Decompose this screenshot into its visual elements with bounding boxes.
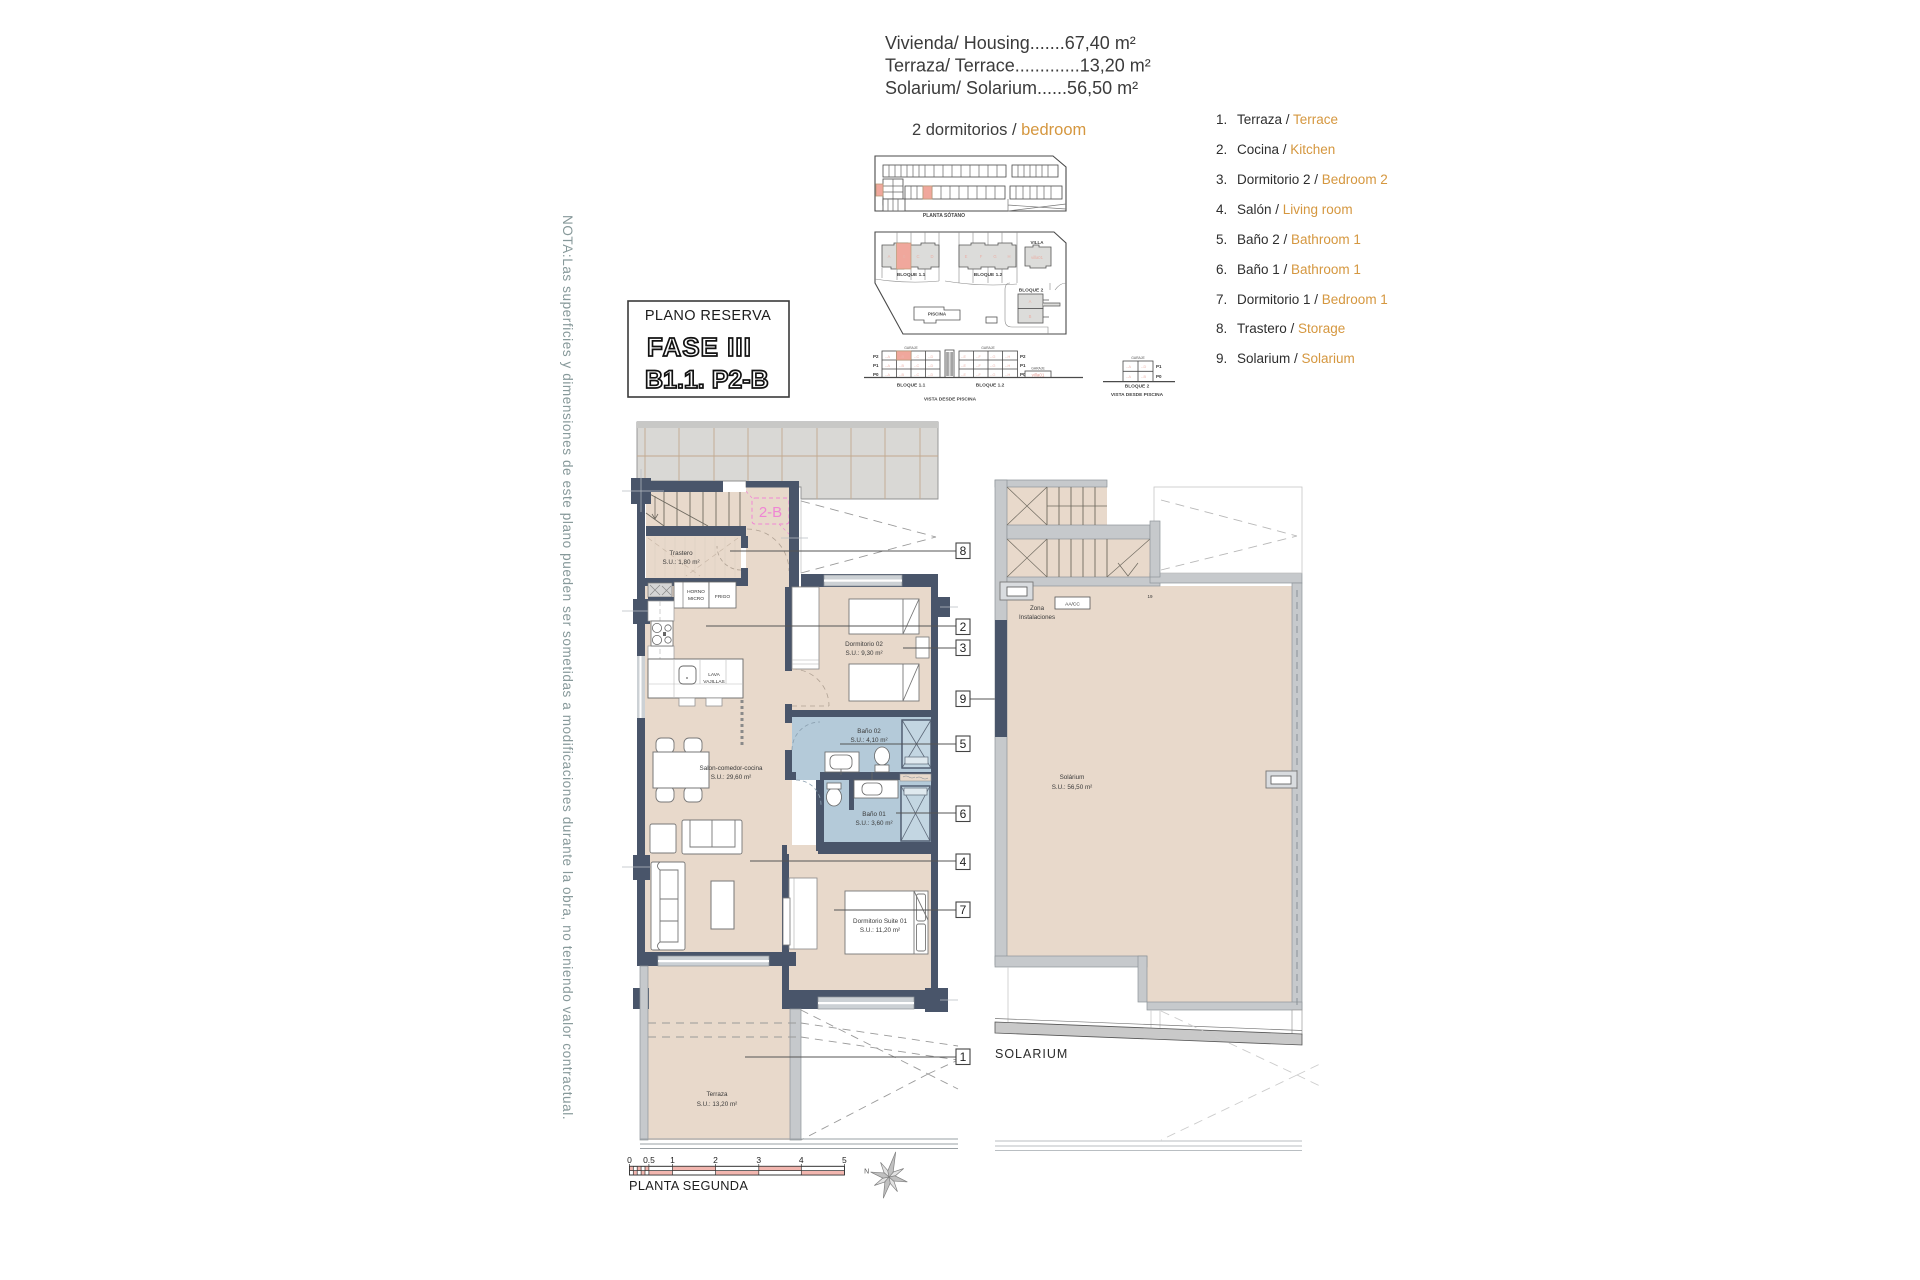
svg-text:4: 4	[799, 1155, 804, 1165]
svg-text:GARAJE: GARAJE	[904, 346, 918, 350]
svg-text:--B: --B	[899, 355, 905, 359]
svg-text:--B: --B	[899, 373, 905, 377]
svg-text:G: G	[993, 254, 996, 259]
svg-text:--F: --F	[976, 364, 982, 368]
svg-text:--A: --A	[885, 355, 891, 359]
svg-text:--C: --C	[914, 373, 920, 377]
svg-text:villa01: villa01	[1032, 373, 1045, 378]
svg-text:Terraza / Terrace: Terraza / Terrace	[1237, 112, 1338, 127]
svg-text:--D: --D	[928, 373, 934, 377]
svg-text:H: H	[1007, 254, 1010, 259]
svg-text:Vivienda/ Housing.......67,40: Vivienda/ Housing.......67,40 m²	[885, 33, 1136, 53]
svg-text:Dormitorio Suite 01: Dormitorio Suite 01	[853, 918, 907, 925]
svg-text:4.: 4.	[1216, 202, 1227, 217]
svg-text:Dormitorio 02: Dormitorio 02	[845, 641, 883, 648]
svg-text:S.U.: 11,20 m²: S.U.: 11,20 m²	[860, 927, 900, 934]
svg-text:--A: --A	[1126, 375, 1132, 379]
svg-text:1: 1	[960, 1050, 967, 1064]
svg-text:1: 1	[670, 1155, 675, 1165]
svg-text:--D: --D	[1141, 365, 1147, 369]
svg-text:2.: 2.	[1216, 142, 1227, 157]
svg-text:5.: 5.	[1216, 232, 1227, 247]
svg-text:GARAJE: GARAJE	[981, 346, 995, 350]
svg-text:BLOQUE 2: BLOQUE 2	[1125, 384, 1150, 390]
svg-text:MICRO: MICRO	[688, 596, 704, 602]
svg-text:--E: --E	[961, 373, 967, 377]
svg-text:Solarium / Solarium: Solarium / Solarium	[1237, 351, 1355, 366]
svg-text:BLOQUE 2: BLOQUE 2	[1019, 288, 1044, 294]
svg-text:0: 0	[627, 1155, 632, 1165]
svg-text:PLANO RESERVA: PLANO RESERVA	[645, 308, 771, 324]
svg-text:A: A	[1029, 299, 1032, 304]
svg-text:P1: P1	[1020, 363, 1026, 368]
svg-text:--A: --A	[1126, 365, 1132, 369]
svg-text:FASE III: FASE III	[647, 332, 752, 362]
svg-text:7.: 7.	[1216, 292, 1227, 307]
svg-text:--C: --C	[914, 355, 920, 359]
svg-text:1.: 1.	[1216, 112, 1227, 127]
svg-text:B1.1. P2-B: B1.1. P2-B	[645, 366, 769, 394]
svg-text:Dormitorio 1 / Bedroom 1: Dormitorio 1 / Bedroom 1	[1237, 292, 1388, 307]
svg-text:--G: --G	[990, 364, 996, 368]
svg-text:--H: --H	[1005, 355, 1011, 359]
svg-text:4: 4	[960, 855, 967, 869]
svg-text:PLANTA SÓTANO: PLANTA SÓTANO	[923, 211, 965, 219]
svg-text:VAJILLAS: VAJILLAS	[703, 679, 725, 685]
svg-text:VISTA DESDE PISCINA: VISTA DESDE PISCINA	[1111, 392, 1164, 398]
svg-text:P1: P1	[1156, 364, 1162, 369]
svg-text:Cocina / Kitchen: Cocina / Kitchen	[1237, 142, 1335, 157]
svg-text:P0: P0	[873, 372, 879, 377]
svg-text:--A: --A	[885, 373, 891, 377]
svg-text:E: E	[965, 254, 968, 259]
svg-text:2: 2	[960, 620, 967, 634]
svg-text:--G: --G	[990, 373, 996, 377]
svg-text:--B: --B	[899, 364, 905, 368]
svg-text:D: D	[930, 254, 933, 259]
svg-text:Baño 02: Baño 02	[857, 728, 881, 735]
svg-text:2: 2	[713, 1155, 718, 1165]
svg-text:--D: --D	[928, 355, 934, 359]
svg-text:9: 9	[960, 692, 967, 706]
svg-text:Zona: Zona	[1030, 605, 1045, 612]
svg-text:5: 5	[842, 1155, 847, 1165]
svg-text:19: 19	[1147, 594, 1153, 599]
svg-text:NOTA:Las superficies y dimensi: NOTA:Las superficies y dimensiones de es…	[560, 215, 575, 1120]
svg-text:--D: --D	[928, 364, 934, 368]
svg-text:2-B: 2-B	[759, 504, 782, 521]
svg-text:Baño 01: Baño 01	[862, 811, 886, 818]
svg-text:0.5: 0.5	[643, 1155, 655, 1165]
svg-text:S.U.: 9,30 m²: S.U.: 9,30 m²	[845, 650, 882, 657]
svg-text:2 dormitorios / bedroom: 2 dormitorios / bedroom	[912, 121, 1086, 139]
svg-text:N: N	[864, 1168, 869, 1175]
svg-text:AA/CC: AA/CC	[1065, 602, 1080, 608]
svg-text:GARAJE: GARAJE	[1031, 367, 1045, 371]
svg-text:GARAJE: GARAJE	[1131, 356, 1145, 360]
svg-text:--B: --B	[1141, 375, 1147, 379]
svg-text:5: 5	[960, 737, 967, 751]
svg-text:villa01: villa01	[1031, 255, 1044, 260]
svg-text:--E: --E	[961, 364, 967, 368]
svg-text:6: 6	[960, 807, 967, 821]
svg-text:--A: --A	[885, 364, 891, 368]
svg-text:VILLA: VILLA	[1031, 240, 1045, 245]
svg-text:7: 7	[960, 903, 967, 917]
svg-text:3: 3	[756, 1155, 761, 1165]
svg-text:Dormitorio 2 / Bedroom 2: Dormitorio 2 / Bedroom 2	[1237, 172, 1388, 187]
svg-text:Terraza: Terraza	[707, 1091, 728, 1098]
svg-text:Salon-comedor-cocina: Salon-comedor-cocina	[700, 765, 763, 772]
svg-text:Solárium: Solárium	[1060, 774, 1085, 781]
svg-text:--G: --G	[990, 355, 996, 359]
svg-text:--H: --H	[1005, 364, 1011, 368]
svg-text:S.U.: 29,60 m²: S.U.: 29,60 m²	[711, 774, 752, 781]
svg-text:BLOQUE 1.1: BLOQUE 1.1	[897, 383, 926, 389]
svg-text:Salón / Living room: Salón / Living room	[1237, 202, 1353, 217]
svg-text:B: B	[1029, 314, 1032, 319]
svg-text:Baño 1 / Bathroom 1: Baño 1 / Bathroom 1	[1237, 262, 1361, 277]
svg-text:6.: 6.	[1216, 262, 1227, 277]
svg-text:A: A	[888, 254, 891, 259]
svg-text:VISTA DESDE PISCINA: VISTA DESDE PISCINA	[924, 397, 977, 403]
svg-text:--H: --H	[1005, 373, 1011, 377]
svg-text:PLANTA SEGUNDA: PLANTA SEGUNDA	[629, 1178, 748, 1193]
svg-text:LAVA: LAVA	[708, 672, 720, 678]
svg-text:C: C	[916, 254, 919, 259]
svg-text:B: B	[903, 254, 906, 259]
svg-text:3.: 3.	[1216, 172, 1227, 187]
svg-text:Trastero / Storage: Trastero / Storage	[1237, 321, 1345, 336]
svg-text:S.U.: 3,60 m²: S.U.: 3,60 m²	[855, 820, 892, 827]
svg-text:BLOQUE 1.2: BLOQUE 1.2	[974, 272, 1003, 278]
svg-text:SOLARIUM: SOLARIUM	[995, 1047, 1068, 1061]
svg-text:9.: 9.	[1216, 351, 1227, 366]
svg-text:F: F	[980, 254, 983, 259]
svg-text:BLOQUE 1.2: BLOQUE 1.2	[976, 383, 1005, 389]
svg-text:P0: P0	[1156, 374, 1162, 379]
svg-text:--C: --C	[914, 364, 920, 368]
svg-text:Trastero: Trastero	[669, 550, 693, 557]
svg-text:PISCINA: PISCINA	[928, 312, 947, 317]
svg-text:3: 3	[960, 641, 967, 655]
svg-text:Terraza/ Terrace.............1: Terraza/ Terrace.............13,20 m²	[885, 56, 1151, 76]
svg-text:BLOQUE 1.1: BLOQUE 1.1	[897, 272, 926, 278]
svg-text:S.U.: 13,20 m²: S.U.: 13,20 m²	[697, 1101, 738, 1108]
svg-text:Instalaciones: Instalaciones	[1019, 614, 1055, 621]
svg-text:FRIGO: FRIGO	[715, 594, 730, 600]
svg-text:S.U.: 56,50 m²: S.U.: 56,50 m²	[1052, 784, 1093, 791]
svg-text:8: 8	[960, 544, 967, 558]
svg-text:--F: --F	[976, 373, 982, 377]
svg-text:Baño 2 / Bathroom 1: Baño 2 / Bathroom 1	[1237, 232, 1361, 247]
svg-text:S.U.: 1,80 m²: S.U.: 1,80 m²	[662, 559, 699, 566]
svg-text:--E: --E	[961, 355, 967, 359]
svg-text:P1: P1	[873, 363, 879, 368]
svg-text:8.: 8.	[1216, 321, 1227, 336]
svg-text:P2: P2	[873, 354, 879, 359]
svg-text:S.U.: 4,10 m²: S.U.: 4,10 m²	[850, 737, 887, 744]
svg-text:HORNO: HORNO	[687, 589, 705, 595]
svg-text:Solarium/ Solarium......56,50: Solarium/ Solarium......56,50 m²	[885, 78, 1138, 98]
svg-text:--F: --F	[976, 355, 982, 359]
svg-text:P2: P2	[1020, 354, 1026, 359]
